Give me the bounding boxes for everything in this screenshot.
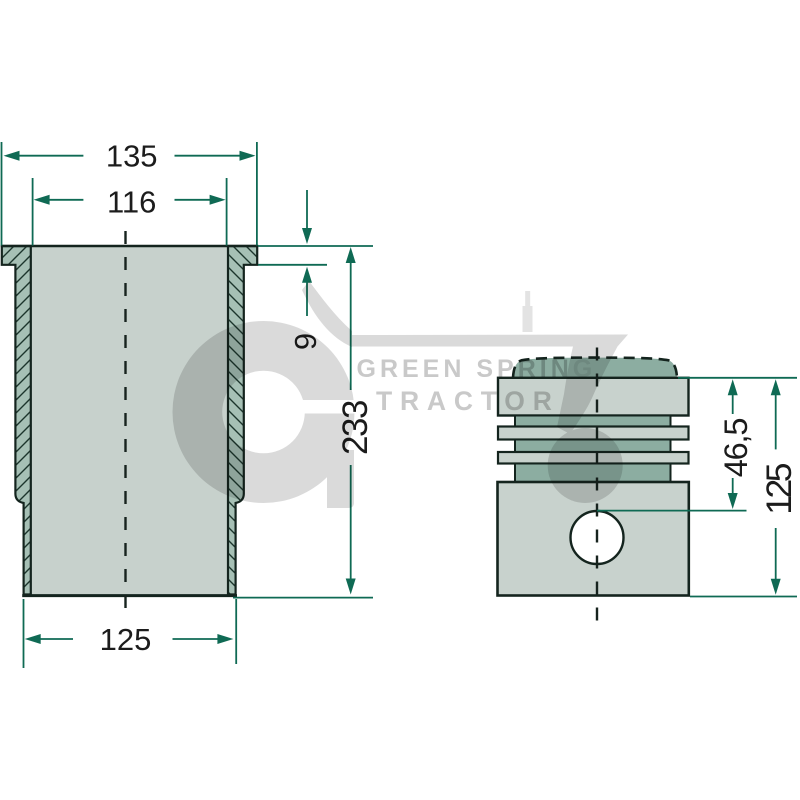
svg-text:116: 116 [107, 185, 156, 220]
svg-text:46,5: 46,5 [718, 419, 754, 478]
svg-text:TRACTOR: TRACTOR [376, 386, 560, 416]
svg-text:125: 125 [759, 463, 799, 514]
svg-text:GREEN SPRING: GREEN SPRING [357, 355, 597, 383]
svg-text:125: 125 [100, 622, 152, 657]
svg-text:135: 135 [106, 139, 158, 174]
